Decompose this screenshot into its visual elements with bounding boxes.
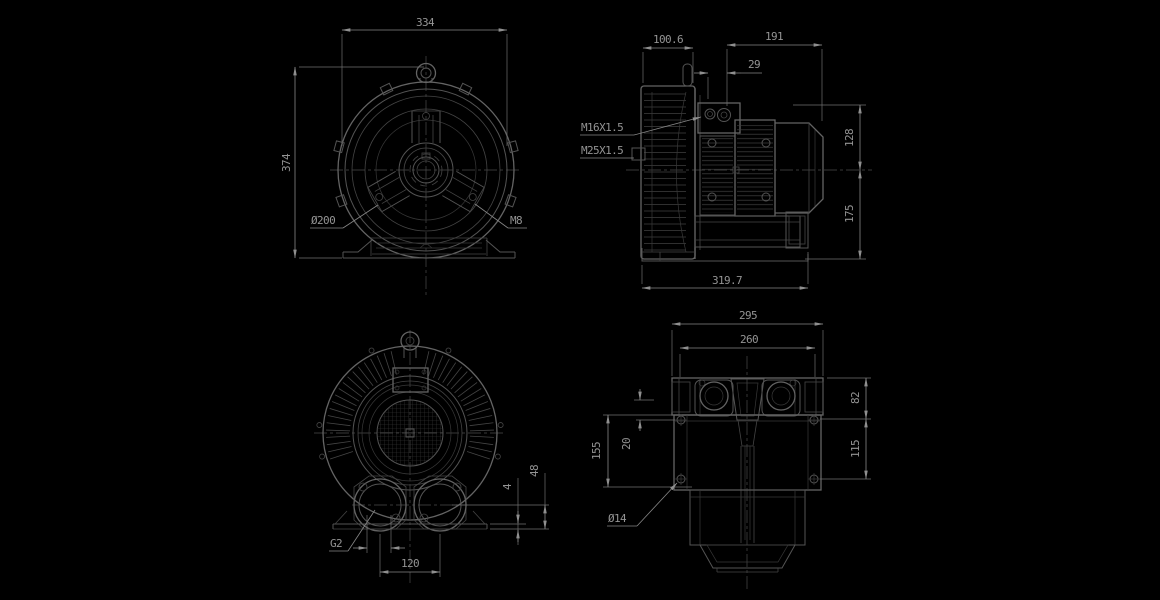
side-view-part bbox=[626, 64, 872, 261]
center-silencer bbox=[731, 379, 764, 420]
rear-view-part bbox=[314, 330, 506, 583]
front-view: 334 374 Ø200 M8 bbox=[280, 16, 527, 298]
drawing-canvas: 334 374 Ø200 M8 bbox=[0, 0, 1160, 600]
label-cable-gland-small: M16X1.5 bbox=[581, 121, 623, 134]
side-view: 100.6 191 29 128 175 319.7 M16X1.5 M25X1… bbox=[580, 30, 872, 288]
fan-cowl-top bbox=[700, 545, 795, 568]
top-view: 295 260 82 115 155 20 Ø14 bbox=[590, 309, 871, 592]
terminal-box-rear bbox=[393, 368, 428, 392]
dim-hole-edge-offset: 82 bbox=[849, 392, 862, 404]
cover-tab bbox=[683, 64, 692, 86]
label-bolt-thread: M8 bbox=[510, 214, 522, 227]
dim-gland-offset: 29 bbox=[748, 58, 760, 71]
top-view-dimensions: 295 260 82 115 155 20 Ø14 bbox=[590, 309, 871, 526]
dim-width: 334 bbox=[416, 16, 435, 29]
dim-height-above-axis: 128 bbox=[843, 129, 856, 147]
motor-top bbox=[690, 490, 805, 545]
port-bell-left bbox=[700, 382, 728, 410]
dim-hole-spacing: 115 bbox=[849, 440, 862, 458]
cable-gland-large bbox=[718, 109, 731, 122]
dim-total-length: 319.7 bbox=[712, 274, 742, 287]
label-cable-gland-large: M25X1.5 bbox=[581, 144, 623, 157]
dim-hole-inset: 20 bbox=[620, 438, 633, 450]
dim-port-center-height: 48 bbox=[528, 465, 541, 477]
terminal-box bbox=[698, 103, 740, 133]
rear-view: G2 120 4 48 bbox=[314, 330, 549, 583]
dim-overall-width: 295 bbox=[739, 309, 757, 322]
blower-technical-drawing: 334 374 Ø200 M8 bbox=[0, 0, 1160, 600]
dim-height: 374 bbox=[280, 153, 293, 172]
impeller-spoke bbox=[368, 171, 410, 211]
dim-port-spacing: 120 bbox=[401, 557, 419, 570]
motor-end-cap bbox=[775, 123, 823, 213]
dim-height-below-axis: 175 bbox=[843, 205, 856, 223]
label-port-thread: G2 bbox=[330, 537, 342, 550]
port-bell-right bbox=[767, 382, 795, 410]
label-hole-diameter: Ø14 bbox=[608, 512, 627, 525]
label-flange-diameter: Ø200 bbox=[311, 214, 335, 227]
dim-clamp-spacing: 260 bbox=[740, 333, 758, 346]
cable-gland-small bbox=[705, 109, 715, 119]
intake-mesh bbox=[378, 401, 443, 466]
base-block bbox=[695, 216, 800, 247]
front-view-dimensions: 334 374 Ø200 M8 bbox=[280, 16, 527, 258]
dim-foot-pad-height: 4 bbox=[501, 483, 514, 490]
dim-motor-length: 191 bbox=[765, 30, 783, 43]
front-view-part bbox=[330, 56, 522, 298]
base-slab bbox=[674, 415, 821, 490]
dim-foot-length: 155 bbox=[590, 442, 603, 460]
top-view-part bbox=[672, 356, 823, 592]
dim-fan-cover-depth: 100.6 bbox=[653, 33, 683, 46]
